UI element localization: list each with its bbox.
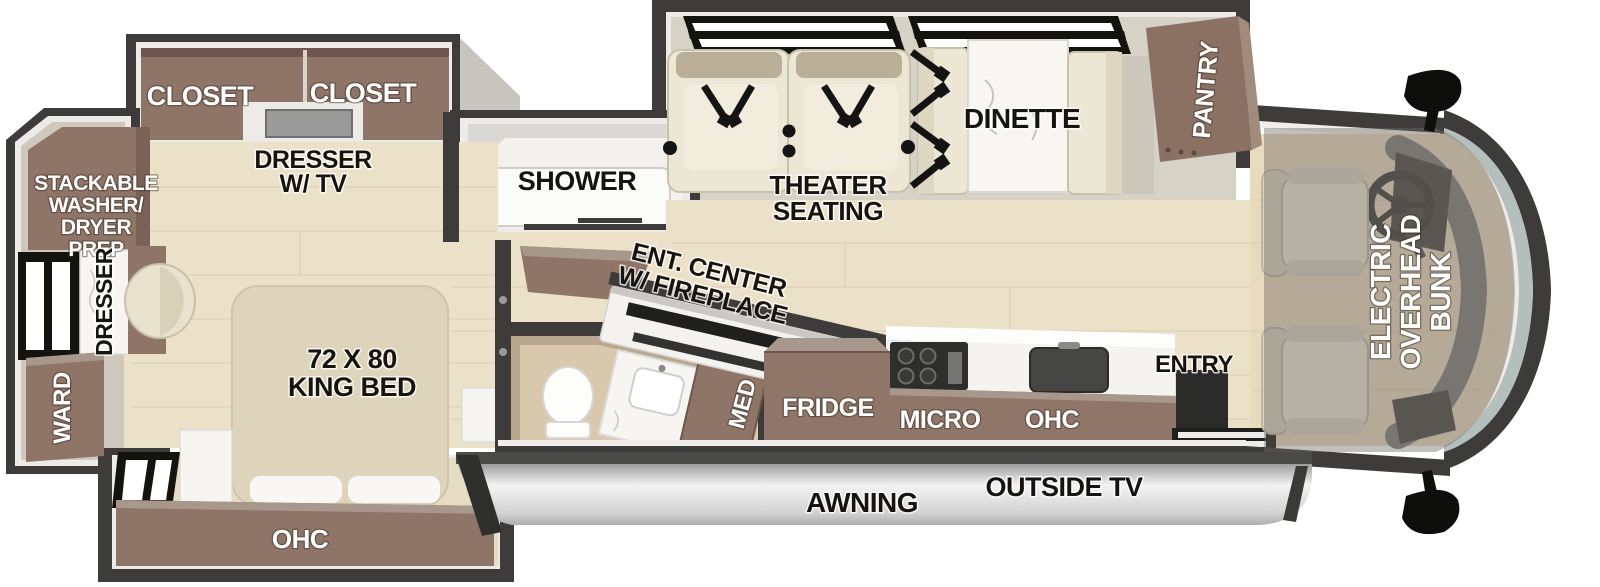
label-bunk-3: BUNK — [1425, 252, 1456, 331]
door-hinge — [499, 296, 507, 304]
label-closet-left: CLOSET — [147, 81, 255, 111]
label-dinette: DINETTE — [964, 103, 1080, 134]
label-dresser-tv-2: W/ TV — [280, 170, 348, 198]
label-micro: MICRO — [900, 406, 981, 434]
label-ward: WARD — [49, 372, 76, 443]
kitchen-sink — [1030, 342, 1108, 392]
label-washer-2: WASHER/ — [49, 194, 144, 217]
pillow — [250, 476, 342, 503]
cooktop — [890, 342, 968, 390]
label-washer-1: STACKABLE — [34, 172, 158, 195]
label-bed-1: 72 X 80 — [307, 344, 397, 374]
bedroom-left-window — [18, 252, 80, 360]
floorplan-image: CLOSET CLOSET DRESSER W/ TV STACKABLE WA… — [0, 0, 1600, 587]
label-theater-2: SEATING — [773, 196, 883, 226]
toilet — [543, 367, 593, 438]
label-entry: ENTRY — [1155, 351, 1233, 378]
label-kitchen-ohc: OHC — [1025, 406, 1080, 434]
label-shower: SHOWER — [518, 166, 637, 196]
bedroom-tv — [266, 110, 352, 137]
label-dresser: DRESSER — [91, 247, 117, 356]
label-awning: AWNING — [806, 487, 918, 518]
slideout-window-left — [683, 16, 906, 54]
rv-floorplan-page: CLOSET CLOSET DRESSER W/ TV STACKABLE WA… — [0, 0, 1600, 587]
bedroom-chair — [125, 264, 195, 338]
shower-door-handle — [578, 218, 642, 223]
label-fridge: FRIDGE — [782, 394, 873, 422]
label-outside-tv: OUTSIDE TV — [985, 472, 1143, 502]
label-closet-right: CLOSET — [310, 78, 418, 108]
label-washer-3: DRYER — [61, 216, 132, 239]
label-bunk-2: OVERHEAD — [1395, 214, 1426, 369]
label-bed-2: KING BED — [288, 372, 416, 402]
side-mirror-bottom — [1402, 470, 1459, 534]
nightstand-left — [180, 430, 232, 504]
door-hinge — [499, 348, 507, 356]
nightstand-right — [462, 388, 500, 442]
pillow — [348, 476, 440, 503]
label-bedroom-ohc: OHC — [272, 524, 329, 554]
label-bunk-1: ELECTRIC — [1365, 224, 1396, 360]
